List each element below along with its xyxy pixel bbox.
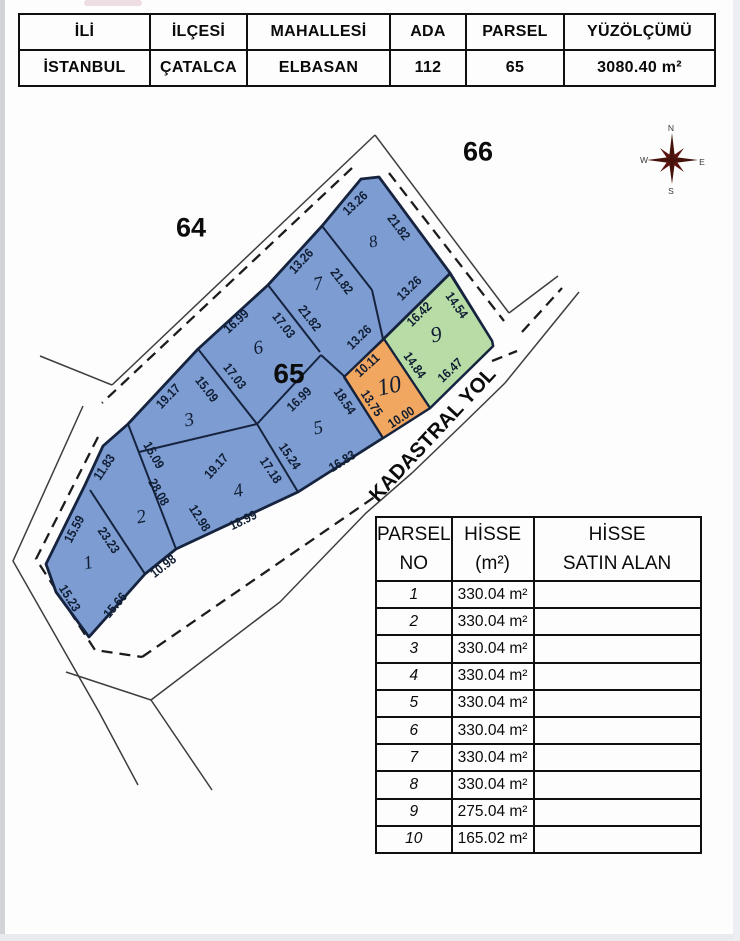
svg-text:66: 66 [463, 136, 493, 166]
svg-text:W: W [640, 155, 648, 165]
svg-text:E: E [699, 157, 705, 167]
svg-text:S: S [668, 186, 674, 196]
svg-text:65: 65 [273, 358, 304, 389]
svg-text:N: N [668, 123, 674, 133]
svg-text:64: 64 [176, 212, 206, 242]
